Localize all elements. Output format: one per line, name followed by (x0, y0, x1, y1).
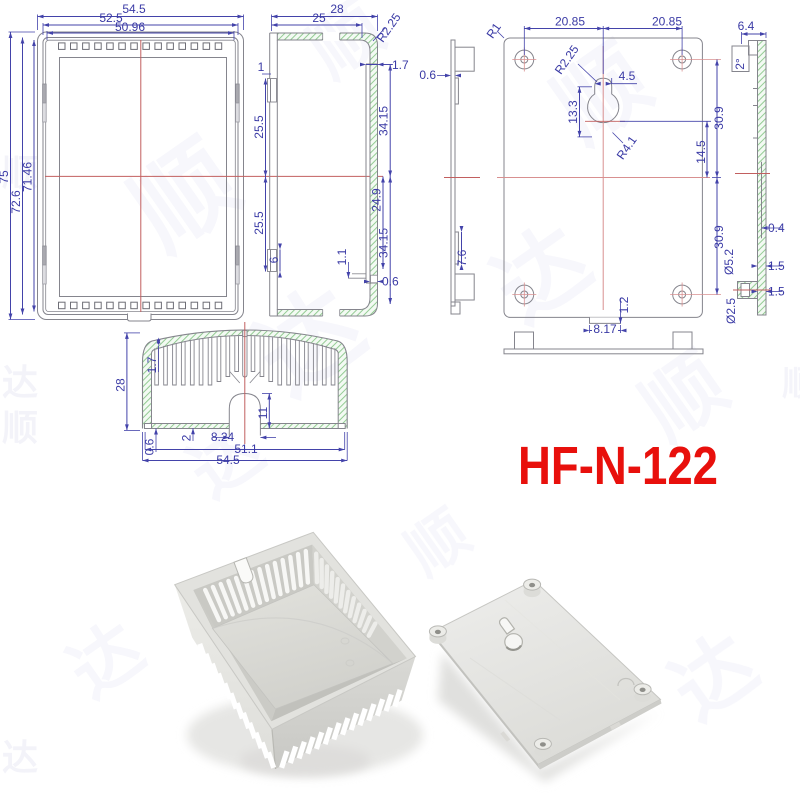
svg-text:8.24: 8.24 (211, 430, 235, 444)
svg-text:1.5: 1.5 (768, 285, 785, 299)
svg-text:20.85: 20.85 (652, 15, 682, 29)
svg-text:1: 1 (258, 60, 265, 74)
svg-text:34.15: 34.15 (377, 106, 391, 136)
svg-text:25.5: 25.5 (252, 115, 266, 139)
svg-text:24.9: 24.9 (370, 188, 384, 212)
svg-text:25: 25 (312, 11, 326, 25)
svg-text:28: 28 (114, 378, 128, 392)
svg-text:1.7: 1.7 (145, 356, 159, 373)
svg-text:1.7: 1.7 (392, 58, 409, 72)
svg-text:1.5: 1.5 (768, 259, 785, 273)
svg-text:11: 11 (256, 406, 270, 419)
svg-text:顺: 顺 (2, 407, 38, 448)
svg-text:Ø2.5: Ø2.5 (724, 298, 738, 324)
svg-text:达: 达 (2, 737, 38, 778)
svg-text:2°: 2° (733, 58, 747, 70)
svg-text:30.9: 30.9 (712, 106, 726, 130)
svg-text:71.46: 71.46 (21, 162, 35, 192)
svg-text:1.2: 1.2 (617, 296, 631, 313)
svg-text:54.5: 54.5 (216, 453, 240, 467)
svg-text:8.17: 8.17 (593, 322, 617, 336)
svg-text:1.1: 1.1 (335, 248, 349, 265)
svg-text:13.3: 13.3 (566, 100, 580, 124)
svg-text:14.5: 14.5 (694, 140, 708, 164)
svg-text:34.15: 34.15 (377, 228, 391, 258)
svg-text:20.85: 20.85 (555, 15, 585, 29)
svg-text:0.4: 0.4 (768, 221, 785, 235)
svg-text:7.6: 7.6 (455, 249, 469, 266)
svg-text:30.9: 30.9 (712, 225, 726, 249)
svg-text:0.6: 0.6 (143, 438, 157, 455)
svg-text:28: 28 (330, 2, 344, 16)
svg-text:4.5: 4.5 (619, 69, 636, 83)
svg-text:0.6: 0.6 (382, 275, 399, 289)
svg-text:HF-N-122: HF-N-122 (518, 436, 718, 496)
svg-text:25.5: 25.5 (252, 211, 266, 235)
svg-text:2: 2 (180, 434, 194, 441)
svg-text:6: 6 (267, 256, 281, 263)
svg-text:0.6: 0.6 (419, 68, 436, 82)
svg-text:达: 达 (2, 362, 38, 403)
svg-text:54.5: 54.5 (122, 2, 146, 16)
svg-text:顺: 顺 (782, 365, 800, 403)
svg-text:75: 75 (0, 170, 11, 184)
svg-text:6.4: 6.4 (738, 19, 755, 33)
svg-text:50.96: 50.96 (115, 20, 145, 34)
svg-text:Ø5.2: Ø5.2 (722, 249, 736, 275)
svg-text:72.6: 72.6 (9, 190, 23, 214)
